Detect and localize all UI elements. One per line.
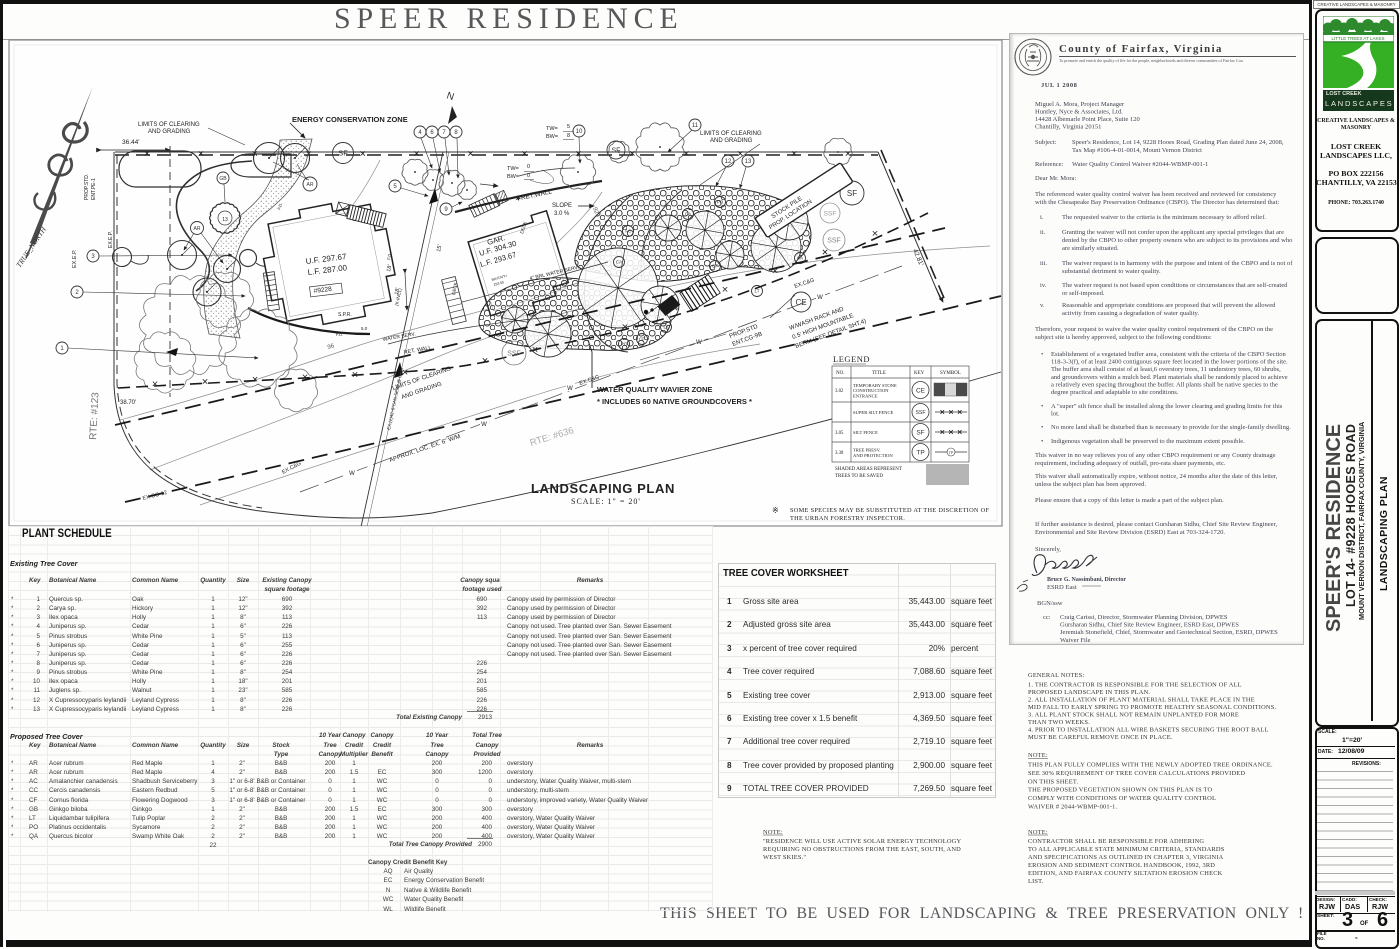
svg-text:Chantilly, Virginia 20151: Chantilly, Virginia 20151: [1035, 124, 1101, 131]
svg-text:Craig Carissi, Director, Storm: Craig Carissi, Director, Stormwater Plan…: [1060, 614, 1228, 621]
svg-text:PO: PO: [621, 342, 628, 347]
svg-text:KEY: KEY: [914, 371, 925, 376]
svg-text:SOME SPECIES MAY BE SUBSTITUTE: SOME SPECIES MAY BE SUBSTITUTED AT THE D…: [790, 507, 989, 514]
svg-text:S.P.R.: S.P.R.: [338, 312, 352, 318]
svg-text:W: W: [817, 295, 823, 301]
svg-text:SSF: SSF: [824, 210, 837, 217]
svg-text:118-3-3(f), of at least 2400 c: 118-3-3(f), of at least 2400 contiguous …: [1051, 359, 1288, 366]
svg-text:PROPOSED LANDSCAPE IN THIS PLA: PROPOSED LANDSCAPE IN THIS PLAN.: [1028, 689, 1150, 696]
svg-text:The waiver request is in harmo: The waiver request is in harmony with th…: [1062, 260, 1293, 267]
svg-text:LANDSCAPING PLAN: LANDSCAPING PLAN: [531, 481, 675, 496]
svg-text:38.70': 38.70': [120, 400, 136, 406]
svg-text:0: 0: [527, 164, 530, 170]
svg-text:LITTLE TREES AT LAKES: LITTLE TREES AT LAKES: [1331, 36, 1384, 41]
svg-text:with the Chesapeake Bay Preser: with the Chesapeake Bay Preservation Ord…: [1035, 199, 1279, 206]
svg-text:AR: AR: [194, 226, 201, 232]
svg-text:SCALE: 1" = 20': SCALE: 1" = 20': [571, 497, 641, 506]
svg-text:degree practical and adaptable: degree practical and adaptable to site c…: [1051, 389, 1179, 396]
svg-text:EX.E.P.: EX.E.P.: [72, 249, 78, 268]
svg-text:TREE PRESV.: TREE PRESV.: [853, 447, 881, 452]
svg-text:W: W: [567, 386, 573, 392]
svg-text:unless the subject plan has be: unless the subject plan has been approve…: [1035, 481, 1146, 488]
svg-text:ON THIS SHEET.: ON THIS SHEET.: [1028, 778, 1079, 785]
svg-text:TW=: TW=: [507, 166, 519, 172]
svg-text:Gursharan Sidhu, Chief Site Re: Gursharan Sidhu, Chief Site Review Engin…: [1060, 622, 1239, 629]
svg-text:SHADED AREAS REPRESENT: SHADED AREAS REPRESENT: [835, 467, 902, 472]
svg-text:SYMBOL: SYMBOL: [940, 371, 961, 376]
svg-text:Miguel A. Mora, Project Manage: Miguel A. Mora, Project Manager: [1035, 101, 1125, 108]
svg-text:If further assistance is desir: If further assistance is desired, please…: [1035, 521, 1277, 528]
svg-text:TW=: TW=: [546, 126, 558, 132]
svg-text:lot.: lot.: [1051, 411, 1060, 418]
svg-text:The requested waiver to the cr: The requested waiver to the criteria is …: [1062, 214, 1266, 221]
svg-text:COMPLY WITH CONDITIONS OF WATE: COMPLY WITH CONDITIONS OF WATER QUALITY …: [1028, 795, 1216, 802]
svg-text:Bruce G. Nassimbani, Director: Bruce G. Nassimbani, Director: [1047, 577, 1126, 583]
svg-text:REQUIRING NO OBSTRUCTIONS FROM: REQUIRING NO OBSTRUCTIONS FROM THE EAST,…: [763, 846, 961, 853]
svg-text:14428 Albemarle Point Place, S: 14428 Albemarle Point Place, Suite 120: [1035, 116, 1140, 123]
svg-text:Indigenous vegetation shall be: Indigenous vegetation shall be preserved…: [1051, 438, 1245, 445]
svg-text:Environmental and Site Review: Environmental and Site Review Division (…: [1035, 529, 1225, 536]
svg-text:THAN TWO WEEKS.: THAN TWO WEEKS.: [1028, 719, 1090, 726]
svg-text:WATER QUALITY WAVIER ZONE: WATER QUALITY WAVIER ZONE: [597, 385, 712, 394]
svg-text:11: 11: [692, 123, 699, 129]
svg-text:※: ※: [772, 506, 779, 515]
svg-text:BGN/ssw: BGN/ssw: [1037, 600, 1063, 607]
svg-text:Subject:: Subject:: [1035, 139, 1057, 146]
svg-text:CA: CA: [616, 260, 622, 265]
svg-text:LIMITS OF CLEARING: LIMITS OF CLEARING: [138, 122, 200, 128]
svg-text:SF: SF: [338, 149, 348, 158]
svg-text:THE URBAN FORESTRY INSPECTOR.: THE URBAN FORESTRY INSPECTOR.: [790, 515, 905, 522]
svg-text:12: 12: [725, 159, 732, 165]
svg-text:EX.E.P.: EX.E.P.: [108, 231, 114, 248]
svg-text:Waiver File: Waiver File: [1060, 637, 1091, 644]
svg-text:AND PROTECTION: AND PROTECTION: [853, 453, 893, 458]
svg-text:MUST BE CAREFUL REMOVE ONCE IN: MUST BE CAREFUL REMOVE ONCE IN PLACE.: [1028, 734, 1173, 741]
svg-text:TO ALL APPLICABLE STATE MINIMU: TO ALL APPLICABLE STATE MINIMUM CRITERIA…: [1028, 846, 1225, 853]
svg-text:NO.: NO.: [836, 371, 844, 376]
svg-text:10: 10: [576, 129, 583, 135]
svg-text:substantial detriment to water: substantial detriment to water quality.: [1062, 268, 1161, 275]
svg-text:SEE 30% REQUIREMENT OF TREE CO: SEE 30% REQUIREMENT OF TREE COVER CALCUL…: [1028, 770, 1245, 777]
svg-text:3. ALL PLANT STOCK SHALL NOT: 3. ALL PLANT STOCK SHALL NOT REMAIN UNPL…: [1028, 712, 1239, 719]
svg-text:LIMITS OF CLEARING: LIMITS OF CLEARING: [700, 131, 762, 137]
svg-text:ESRD East: ESRD East: [1047, 584, 1077, 591]
svg-text:AND SPECIFICATIONS AS OUTLINED: AND SPECIFICATIONS AS OUTLINED IN CHAPTE…: [1028, 854, 1224, 861]
svg-text:Therefore, your request to wai: Therefore, your request to waive the wat…: [1035, 326, 1273, 333]
svg-text:SF: SF: [916, 429, 924, 436]
svg-text:SILT FENCE: SILT FENCE: [853, 430, 878, 435]
svg-text:Dear Mr. Mora:: Dear Mr. Mora:: [1035, 175, 1076, 182]
svg-text:THE PROPOSED VEGETATION SHOWN: THE PROPOSED VEGETATION SHOWN ON THIS PL…: [1028, 787, 1213, 794]
svg-text:EDITION, AND FAIRFAX COUNTY SI: EDITION, AND FAIRFAX COUNTY SILTATION ER…: [1028, 870, 1223, 877]
svg-text:subject site is hereby approve: subject site is hereby approved, subject…: [1035, 334, 1212, 341]
svg-text:13: 13: [222, 217, 228, 223]
svg-text:The buffer area shall consist: The buffer area shall consist of at leas…: [1051, 366, 1281, 373]
svg-text:CA: CA: [685, 212, 691, 217]
svg-text:Tax Map #106-4-01-0014, Mount: Tax Map #106-4-01-0014, Mount Vernon Dis…: [1072, 147, 1202, 154]
svg-text:cc:: cc:: [1043, 614, 1051, 621]
svg-text:denied by the CBPO to other pr: denied by the CBPO to other property own…: [1062, 237, 1293, 244]
svg-text:•: •: [1041, 438, 1043, 445]
svg-text:MID FALL TO EARLY SPRING TO PR: MID FALL TO EARLY SPRING TO PROMOTE HEAL…: [1028, 704, 1276, 711]
svg-text:The referenced water quality c: The referenced water quality control wai…: [1035, 191, 1277, 198]
svg-text:are similarly situated.: are similarly situated.: [1062, 245, 1119, 252]
svg-text:Granting the waiver will not c: Granting the waiver will not confer upon…: [1062, 229, 1284, 236]
svg-text:5.0: 5.0: [361, 326, 368, 331]
svg-text:SSF: SSF: [507, 350, 521, 357]
svg-text:•: •: [1041, 424, 1043, 431]
svg-text:•: •: [1041, 403, 1043, 410]
svg-text:8: 8: [567, 133, 570, 139]
svg-text:AR: AR: [307, 182, 314, 188]
svg-text:Establishment of a vegetated b: Establishment of a vegetated buffer area…: [1051, 351, 1286, 358]
svg-text:or self-imposed.: or self-imposed.: [1062, 290, 1105, 297]
svg-text:ii.: ii.: [1040, 229, 1046, 236]
svg-text:To promote and enrich the qual: To promote and enrich the quality of lif…: [1059, 58, 1243, 64]
svg-text:AND GRADING: AND GRADING: [710, 138, 753, 144]
svg-text:1. THE CONTRACTOR IS RESPONS: 1. THE CONTRACTOR IS RESPONSIBLE FOR THE…: [1028, 682, 1242, 689]
svg-text:This waiver shall automaticall: This waiver shall automatically expire, …: [1035, 473, 1278, 480]
svg-text:36.44': 36.44': [122, 139, 140, 146]
svg-text:WEST SKIES.": WEST SKIES.": [763, 854, 806, 861]
svg-text:Reasonable and appropriate con: Reasonable and appropriate conditions ar…: [1062, 302, 1276, 309]
svg-text:CF: CF: [712, 264, 718, 269]
svg-text:and groundcovers within a mulc: and groundcovers within a mulch bed. Pla…: [1051, 374, 1288, 381]
svg-text:LT: LT: [664, 325, 669, 330]
svg-text:requirement, including adequac: requirement, including adequacy of outfa…: [1035, 460, 1226, 467]
svg-text:ENERGY CONSERVATION ZONE: ENERGY CONSERVATION ZONE: [292, 115, 408, 124]
svg-text:Speer's Residence, Lot 14, 922: Speer's Residence, Lot 14, 9228 Hooes Ro…: [1072, 139, 1284, 146]
svg-text:BW=: BW=: [507, 174, 519, 180]
svg-text:"RESIDENCE WILL USE ACTIVE SOL: "RESIDENCE WILL USE ACTIVE SOLAR ENERGY …: [763, 838, 961, 845]
svg-text:PO: PO: [717, 200, 724, 205]
svg-text:No more land shall be disturbe: No more land shall be disturbed than is …: [1051, 424, 1291, 431]
svg-text:3.38: 3.38: [835, 451, 844, 456]
svg-text:GENERAL NOTES:: GENERAL NOTES:: [1028, 672, 1084, 679]
svg-text:a relatively even spacing thro: a relatively even spacing throughout the…: [1051, 381, 1278, 388]
svg-text:AC: AC: [625, 229, 632, 234]
svg-text:5: 5: [567, 124, 570, 130]
svg-text:SLOPE: SLOPE: [552, 203, 572, 209]
svg-text:3.05: 3.05: [835, 431, 844, 436]
svg-text:W: W: [349, 471, 355, 477]
svg-text:SUPER SILT FENCE: SUPER SILT FENCE: [853, 410, 894, 415]
svg-text:3.02: 3.02: [835, 389, 844, 394]
svg-text:activity from causing a degrad: activity from causing a degradation of w…: [1062, 310, 1199, 317]
svg-text:SF: SF: [612, 147, 621, 154]
svg-text:Reference:: Reference:: [1035, 161, 1064, 168]
svg-text:TITLE: TITLE: [872, 371, 886, 376]
svg-text:4. PRIOR TO INSTALLATION ALL: 4. PRIOR TO INSTALLATION ALL WIRE BASKET…: [1028, 727, 1269, 734]
svg-text:LEGEND: LEGEND: [833, 354, 870, 364]
svg-text:County of Fairfax, Virginia: County of Fairfax, Virginia: [1059, 43, 1223, 55]
svg-text:CONTRACTOR SHALL BE RESPONSIBL: CONTRACTOR SHALL BE RESPONSIBLE FOR ADHE…: [1028, 838, 1204, 845]
svg-text:CONSTRUCTION: CONSTRUCTION: [853, 388, 889, 393]
svg-text:i.: i.: [1040, 214, 1044, 221]
svg-text:JUL 1 2008: JUL 1 2008: [1041, 82, 1078, 89]
svg-text:•: •: [1041, 351, 1043, 358]
svg-text:PROP.STD.: PROP.STD.: [84, 174, 90, 200]
svg-text:iv.: iv.: [1040, 282, 1047, 289]
svg-text:SF: SF: [847, 189, 857, 198]
svg-text:SSF: SSF: [915, 410, 925, 416]
svg-text:CF: CF: [639, 337, 645, 342]
svg-text:TP: TP: [949, 451, 954, 455]
svg-text:Please ensure that a copy of t: Please ensure that a copy of this letter…: [1035, 497, 1224, 504]
svg-text:Sincerely,: Sincerely,: [1035, 546, 1061, 553]
svg-text:CA: CA: [797, 256, 803, 261]
svg-text:Water Quality Control Waiver #: Water Quality Control Waiver #2044-WBMP-…: [1072, 161, 1208, 168]
svg-text:* INCLUDES 60 NATIVE GROUNDCOV: * INCLUDES 60 NATIVE GROUNDCOVERS *: [597, 397, 752, 406]
svg-text:TP: TP: [916, 449, 924, 456]
svg-text:BW=: BW=: [546, 134, 558, 140]
svg-text:CE: CE: [916, 387, 926, 394]
svg-text:3.0 %: 3.0 %: [554, 211, 570, 217]
svg-text:NOTE:: NOTE:: [1028, 752, 1048, 759]
svg-text:EROSION AND SEDIMENT CONTROL H: EROSION AND SEDIMENT CONTROL HANDBOOK, 1…: [1028, 862, 1215, 869]
svg-text:2. ALL INSTALLATION OF PLANT: 2. ALL INSTALLATION OF PLANT MATERIAL SH…: [1028, 697, 1255, 704]
svg-text:SSF: SSF: [827, 237, 841, 244]
svg-text:Huntley, Nyce & Associates, Lt: Huntley, Nyce & Associates, Ltd.: [1035, 109, 1123, 116]
svg-text:The waiver request is not base: The waiver request is not based upon con…: [1062, 282, 1288, 289]
svg-text:W: W: [481, 422, 487, 428]
svg-text:iii.: iii.: [1040, 260, 1047, 267]
svg-text:TREES TO BE SAVED: TREES TO BE SAVED: [835, 474, 883, 479]
svg-text:This waiver in no way relieves: This waiver in no way relieves you of an…: [1035, 452, 1276, 459]
svg-text:CE: CE: [795, 298, 806, 307]
svg-text:A "super" silt fence shall be: A "super" silt fence shall be installed …: [1051, 403, 1283, 410]
svg-text:TEMPORARY STONE: TEMPORARY STONE: [853, 383, 897, 388]
svg-text:13: 13: [745, 159, 752, 165]
svg-text:Jeremiah Stonefield, Chief, St: Jeremiah Stonefield, Chief, Stormwater a…: [1060, 629, 1278, 636]
svg-text:ENTRANCE: ENTRANCE: [853, 394, 878, 399]
svg-text:LIST.: LIST.: [1028, 878, 1044, 885]
svg-text:v.: v.: [1040, 302, 1045, 309]
svg-text:ENT.PE-1: ENT.PE-1: [91, 178, 97, 200]
svg-text:WAIVER # 2044-WBMP-001-1.: WAIVER # 2044-WBMP-001-1.: [1028, 804, 1118, 811]
svg-text:AND GRADING: AND GRADING: [148, 129, 191, 135]
svg-text:GB: GB: [219, 176, 227, 182]
svg-text:THIS PLAN FULLY COMPLIES WITH: THIS PLAN FULLY COMPLIES WITH THE NEWLY …: [1028, 762, 1273, 769]
